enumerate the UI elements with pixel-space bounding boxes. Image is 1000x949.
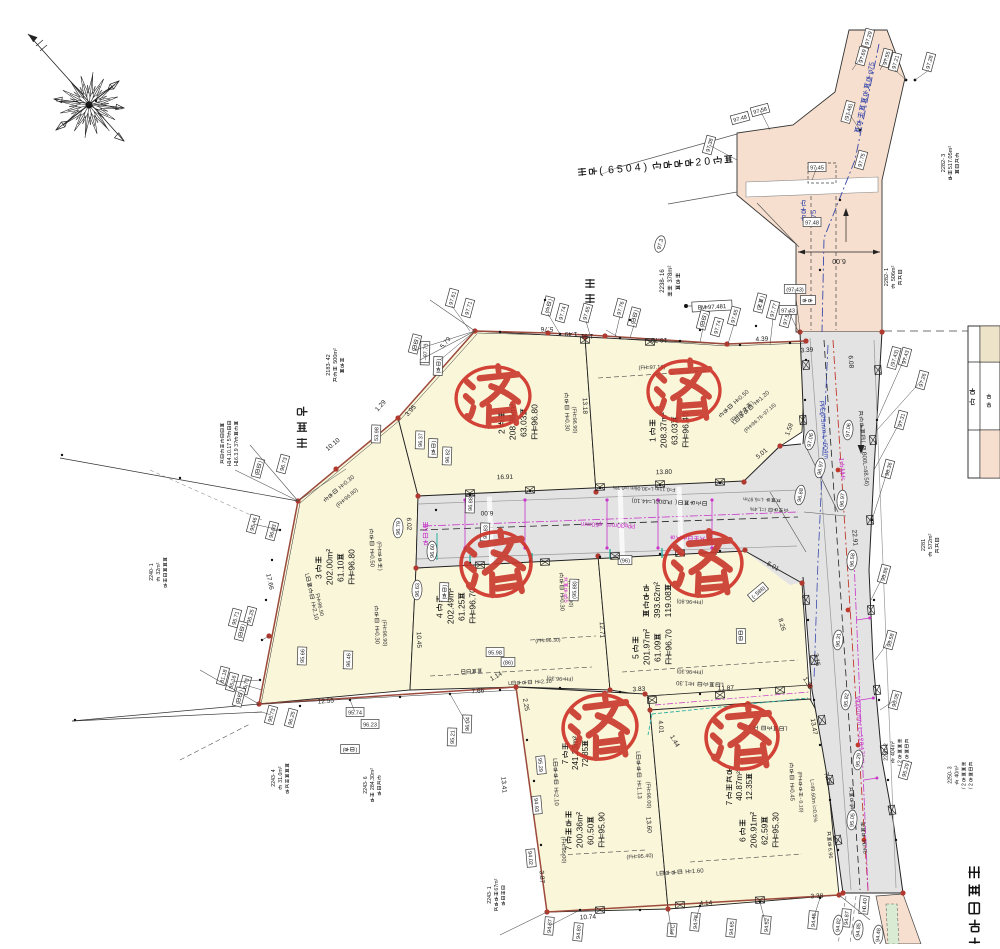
svg-text:²: ² [668, 266, 674, 268]
svg-text:²: ² [955, 765, 961, 767]
svg-text:?: ? [227, 435, 233, 438]
svg-text:): ) [571, 431, 577, 433]
svg-text:m: m [642, 632, 652, 639]
svg-text:0: 0 [664, 629, 674, 634]
svg-text:0: 0 [704, 155, 711, 167]
svg-text:=: = [376, 549, 382, 552]
svg-text:2: 2 [405, 527, 412, 531]
svg-text:-: - [326, 361, 332, 363]
svg-text:-: - [660, 277, 666, 279]
svg-text:²: ² [928, 533, 934, 535]
svg-text:): ) [376, 569, 382, 571]
svg-text:3: 3 [415, 583, 421, 586]
svg-text:m: m [575, 815, 585, 822]
svg-text:M: M [423, 525, 430, 531]
svg-text:%: % [749, 505, 754, 511]
svg-text:m: m [743, 495, 748, 501]
svg-text:0: 0 [863, 898, 869, 902]
svg-text:7: 7 [418, 433, 424, 436]
svg-text:0: 0 [771, 812, 781, 817]
svg-text:7: 7 [840, 493, 846, 497]
svg-text:0: 0 [549, 679, 552, 685]
svg-text:): ) [802, 287, 804, 293]
svg-text:6: 6 [346, 653, 352, 656]
svg-text:2: 2 [836, 918, 842, 922]
svg-text:7: 7 [227, 443, 233, 446]
svg-text:(: ( [431, 453, 437, 455]
svg-text:7: 7 [548, 919, 554, 923]
svg-text:3: 3 [948, 766, 954, 769]
svg-text:1: 1 [450, 730, 456, 733]
svg-text:²: ² [278, 766, 284, 768]
svg-text:8: 8 [850, 553, 856, 557]
svg-text:9: 9 [856, 753, 862, 757]
svg-text:1: 1 [648, 437, 658, 442]
svg-text:8: 8 [374, 427, 380, 430]
svg-text:²: ² [156, 562, 162, 564]
svg-text:5: 5 [856, 923, 862, 927]
svg-text:0: 0 [530, 404, 540, 409]
svg-text:2: 2 [844, 693, 850, 697]
svg-text:²: ² [494, 878, 500, 880]
svg-text:8: 8 [816, 220, 819, 226]
svg-text:0: 0 [625, 162, 632, 174]
svg-text:0: 0 [861, 851, 867, 855]
svg-text:): ) [676, 668, 678, 674]
svg-text:2: 2 [962, 783, 968, 786]
svg-text:2: 2 [326, 354, 332, 357]
svg-text:²: ² [642, 629, 652, 632]
svg-text:9: 9 [234, 448, 240, 451]
svg-text:): ) [632, 497, 634, 503]
svg-text:): ) [356, 747, 358, 753]
svg-text:1: 1 [598, 634, 605, 638]
svg-text:3: 3 [533, 809, 539, 813]
svg-text:): ) [676, 598, 678, 604]
svg-text:4: 4 [435, 613, 445, 618]
svg-text:6: 6 [540, 325, 544, 332]
svg-text:m: m [749, 815, 759, 822]
svg-text:5: 5 [745, 779, 754, 784]
svg-text:1: 1 [509, 474, 513, 481]
svg-text:-: - [487, 890, 493, 892]
svg-text:-: - [941, 158, 947, 160]
svg-text:5: 5 [850, 813, 856, 817]
svg-text:m: m [820, 428, 827, 434]
svg-text:5: 5 [616, 163, 623, 175]
svg-text:²: ² [891, 741, 897, 743]
svg-text:-: - [948, 770, 954, 772]
svg-text:7: 7 [561, 759, 570, 764]
svg-text:5: 5 [457, 599, 467, 604]
svg-text:2: 2 [695, 156, 702, 168]
svg-text:8: 8 [663, 591, 673, 596]
svg-text:7: 7 [725, 800, 734, 805]
svg-text:²: ² [749, 812, 759, 815]
svg-text:5: 5 [809, 210, 818, 214]
svg-text:): ) [567, 605, 573, 607]
svg-text:2: 2 [527, 862, 533, 866]
svg-text:3: 3 [941, 154, 947, 157]
svg-text:(: ( [442, 597, 448, 599]
svg-text:9: 9 [396, 521, 402, 524]
svg-text:(: ( [343, 747, 345, 753]
svg-text:-: - [149, 567, 155, 569]
svg-text:²: ² [333, 348, 339, 350]
svg-text:4: 4 [271, 769, 277, 772]
svg-text:3: 3 [314, 574, 324, 579]
svg-text:4: 4 [634, 162, 641, 174]
svg-text:-: - [271, 773, 277, 775]
svg-text:m: m [325, 552, 335, 559]
svg-text:9: 9 [760, 823, 770, 828]
svg-text:5: 5 [821, 165, 824, 171]
svg-text:²: ² [735, 771, 744, 774]
svg-text:²: ² [891, 265, 897, 267]
svg-text:m: m [581, 520, 587, 527]
svg-text:8: 8 [468, 497, 474, 500]
svg-text:): ) [560, 861, 566, 863]
svg-text:5: 5 [415, 644, 422, 648]
svg-text:m: m [652, 585, 662, 592]
svg-text:2: 2 [497, 429, 507, 434]
svg-text:9: 9 [537, 769, 543, 773]
svg-text:1: 1 [921, 539, 927, 542]
svg-text:(: ( [436, 371, 442, 373]
svg-text:5: 5 [581, 746, 590, 751]
svg-text:1: 1 [884, 268, 890, 271]
svg-text:1: 1 [149, 563, 155, 566]
svg-text:m: m [855, 719, 862, 725]
svg-text:²: ² [575, 812, 585, 815]
svg-text:%: % [812, 817, 818, 823]
svg-text:7: 7 [845, 911, 851, 915]
svg-text:8: 8 [499, 650, 502, 656]
svg-text:1: 1 [836, 633, 842, 637]
svg-text:3: 3 [792, 308, 795, 314]
svg-text:0: 0 [336, 560, 346, 565]
svg-text:C: C [670, 924, 676, 929]
svg-text:6: 6 [363, 776, 369, 779]
svg-text:5: 5 [730, 921, 736, 925]
svg-text:0: 0 [832, 257, 836, 264]
svg-text:): ) [511, 660, 513, 666]
svg-text:0: 0 [577, 925, 583, 929]
svg-text:²: ² [652, 582, 662, 585]
svg-text:(: ( [675, 498, 677, 504]
svg-text:=: = [797, 779, 803, 782]
svg-text:2: 2 [765, 918, 771, 922]
svg-text:3: 3 [483, 525, 489, 528]
svg-text:6: 6 [300, 649, 306, 652]
svg-text:m: m [630, 484, 635, 490]
svg-text:9: 9 [564, 330, 568, 337]
svg-text:2: 2 [445, 449, 451, 452]
svg-text:0: 0 [597, 812, 607, 817]
svg-text:5: 5 [631, 654, 641, 659]
svg-text:2: 2 [969, 783, 975, 786]
svg-text:4: 4 [465, 717, 471, 720]
svg-text:6: 6 [846, 423, 852, 427]
svg-text:4: 4 [359, 710, 362, 716]
svg-text:m: m [822, 453, 829, 459]
svg-text:m: m [606, 521, 612, 528]
svg-text:0: 0 [430, 544, 436, 547]
svg-text:0: 0 [480, 509, 484, 516]
svg-text:1: 1 [837, 457, 844, 462]
svg-text:8: 8 [876, 928, 882, 932]
svg-text:-: - [884, 272, 890, 274]
svg-text:6: 6 [827, 855, 833, 859]
svg-text:5: 5 [562, 600, 568, 603]
svg-text:): ) [628, 558, 630, 564]
svg-text:-: - [363, 780, 369, 782]
svg-text:): ) [573, 581, 579, 583]
svg-text:L: L [508, 681, 511, 687]
svg-text:0: 0 [586, 823, 596, 828]
svg-text:%: % [612, 484, 617, 490]
svg-text:1: 1 [487, 886, 493, 889]
svg-text:²: ² [370, 768, 376, 770]
svg-text:²: ² [948, 146, 954, 148]
svg-text:?: ? [234, 441, 240, 444]
svg-text:): ) [645, 806, 651, 808]
svg-text:3: 3 [374, 722, 377, 728]
svg-text:6: 6 [608, 164, 615, 176]
svg-text:8: 8 [581, 410, 588, 414]
svg-text:0: 0 [668, 469, 672, 476]
svg-text:): ) [381, 644, 387, 646]
svg-text:6: 6 [738, 837, 748, 842]
svg-text:0: 0 [347, 549, 357, 554]
svg-text:9: 9 [653, 640, 663, 645]
svg-text:3: 3 [670, 423, 680, 428]
svg-text:²: ² [325, 549, 335, 552]
svg-text:=: = [839, 476, 846, 481]
